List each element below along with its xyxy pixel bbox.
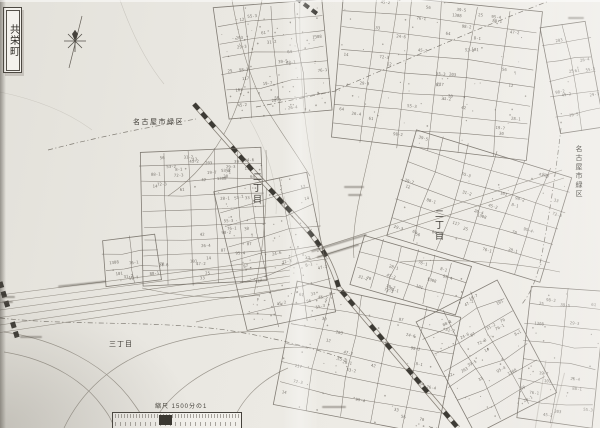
parcel-number: 95-4 — [495, 365, 506, 374]
parcel-number: 26-4 — [570, 376, 581, 382]
parcel-number: 12 — [239, 17, 245, 23]
micro-text — [2, 296, 15, 298]
parcel-number: 8-1 — [513, 329, 522, 337]
parcel-number: 56 — [274, 95, 280, 101]
parcel-number: 95-4 — [523, 226, 534, 234]
parcel-number: 61 — [261, 30, 267, 36]
parcel-number: 25 — [227, 68, 233, 74]
parcel-number: 33 — [477, 375, 484, 382]
parcel-number: 101 — [115, 270, 123, 276]
parcel-number: 53-2 — [346, 367, 357, 374]
parcel-number: 55-3 — [583, 407, 594, 413]
micro-text — [2, 301, 13, 303]
micro-text — [20, 336, 42, 338]
parcel-number: 98-2 — [462, 23, 473, 29]
parcel-number: 1308 — [109, 259, 120, 265]
parcel-number: 29-3 — [570, 320, 581, 326]
parcel-number: 64 — [287, 49, 293, 55]
interchange-ramps — [4, 314, 308, 428]
parcel-number: 88-1 — [149, 270, 160, 276]
parcel-number: 29-3 — [393, 224, 404, 232]
parcel-number: 64 — [445, 31, 451, 37]
parcel-number: 55-3 — [407, 103, 418, 109]
parcel-number: 12 — [300, 183, 306, 189]
parcel-number: 61 — [368, 116, 374, 122]
parcel-number: 61 — [591, 302, 597, 308]
parcel-number: 8-1 — [415, 361, 424, 367]
parcel-number: 42 — [461, 105, 467, 111]
parcel-number: 203 — [449, 72, 457, 78]
parcel-number: 31-2 — [462, 189, 473, 197]
parcel-cluster-far-southeast: 10176-1130819-788-139-52036126-429-32598… — [514, 283, 600, 428]
parcel-number: 19-7 — [495, 125, 506, 131]
parcel-number: 56 — [502, 67, 508, 73]
parcel-number: 8-1 — [473, 35, 481, 41]
parcel-number: 33 — [553, 197, 560, 203]
parcel-number: 56 — [426, 4, 432, 10]
parcel-number: 56 — [415, 231, 422, 237]
parcel-number: 8-1 — [175, 167, 183, 172]
parcel-number: 1308 — [452, 12, 463, 18]
parcel-number: 42 — [201, 177, 207, 182]
parcel-number: 28-1 — [511, 116, 522, 122]
parcel-number: 95-4 — [235, 250, 245, 255]
parcel-number: 14 — [483, 346, 490, 353]
parcel-number: 39-5 — [234, 159, 244, 164]
parcel-number: 31-2 — [441, 96, 452, 102]
parcel-cluster-west-grid-south: 31-210176-1130819-788-1 — [100, 232, 162, 286]
parcel-number: 28-1 — [220, 196, 230, 201]
parcel-number: 33 — [375, 25, 381, 31]
district-label-nichome-west: 二丁目 — [251, 172, 264, 205]
parcel-number: 117 — [244, 166, 252, 171]
parcel-number: 70 — [511, 229, 518, 235]
parcel-number: 87 — [435, 82, 441, 88]
parcel-number: 1308 — [426, 276, 437, 284]
parcel-number: 12 — [192, 157, 198, 162]
scale-label: 縮尺 1500分の1 — [155, 401, 207, 410]
parcel-number: 55-3 — [247, 13, 258, 19]
parcel-number: 33 — [200, 275, 206, 280]
parcel-number: 24-6 — [396, 33, 407, 39]
parcel-number: 101 — [471, 46, 479, 52]
parcel-number: 14 — [281, 389, 287, 395]
parcel-number: 45-2 — [418, 47, 429, 53]
parcel-cluster-north-right: 98-255-345-264561211753-2143024-68742337… — [328, 0, 542, 162]
parcel-number: 39-5 — [467, 358, 478, 367]
parcel-number: 203 — [236, 35, 244, 41]
parcel-number: 88-1 — [151, 171, 161, 176]
parcel-number: 45-2 — [237, 102, 248, 108]
parcel-number: 45-2 — [318, 294, 329, 301]
parcel-number: 39-5 — [418, 134, 429, 142]
parcel-number: 87 — [469, 331, 476, 338]
parcel-number: 24-6 — [244, 157, 254, 162]
parcel-number: 72-3 — [293, 378, 304, 385]
parcel-number: 55-3 — [224, 218, 234, 223]
town-title-inner-frame: 共栄町 — [6, 10, 20, 71]
parcel-number: 47-2 — [510, 29, 521, 35]
parcel-number: 117 — [242, 75, 250, 81]
parcel-number: 33 — [310, 291, 316, 297]
parcel-number: 101 — [544, 378, 552, 384]
parcel-number: 33 — [394, 407, 400, 413]
parcel-number: 70 — [419, 416, 425, 422]
parcel-number: 24-6 — [459, 331, 470, 340]
highway-lines — [0, 170, 564, 333]
parcel-number: 72-3 — [476, 337, 487, 346]
parcel-number: 33 — [245, 195, 251, 200]
parcel-number: 12 — [508, 82, 514, 88]
parcel-number: 25 — [478, 12, 484, 18]
parcel-number: 88-1 — [426, 197, 437, 205]
micro-text — [568, 17, 584, 19]
parcel-number: 61 — [574, 67, 580, 73]
parcel-number: 117 — [294, 363, 303, 369]
parcel-number: 98-2 — [515, 195, 526, 203]
parcel-number: 1308 — [534, 321, 545, 327]
parcel-number: 12 — [405, 183, 412, 189]
parcel-cluster-far-northeast: 39-52036126-429-32598-255-345-2 — [538, 19, 600, 135]
scale-bar-ticks — [115, 414, 239, 418]
parcel-number: 56 — [160, 155, 166, 160]
parcel-number: 42 — [200, 232, 206, 237]
parcel-number: 8-1 — [511, 202, 520, 209]
scale-bar-filled-segment — [159, 415, 172, 425]
parcel-number: 101 — [415, 283, 424, 290]
parcel-number: 95-4 — [442, 273, 453, 281]
parcel-number: 29-3 — [237, 44, 248, 50]
scale-bar — [112, 412, 242, 428]
parcel-number: 87 — [221, 247, 227, 252]
parcel-number: 88-1 — [572, 386, 583, 392]
parcel-number: 56 — [401, 414, 407, 420]
parcel-number: 117 — [452, 220, 461, 227]
parcel-number: 203 — [205, 160, 213, 165]
parcel-number: 31-2 — [267, 39, 278, 45]
parcel-number: 72-3 — [379, 54, 390, 60]
scanned-cadastral-map: 28-131-210176-1130819-788-139-52036126-4… — [0, 0, 600, 428]
parcel-number: 30 — [321, 316, 327, 322]
parcel-number: 87 — [398, 317, 404, 323]
parcel-number: 30 — [499, 131, 505, 137]
parcel-number: 12 — [326, 338, 332, 344]
parcel-number: 29-3 — [359, 80, 370, 86]
town-title: 共栄町 — [8, 24, 18, 57]
parcel-number: 64 — [339, 106, 345, 112]
parcel-number: 76-1 — [416, 15, 427, 21]
boundary-label-right: 名古屋市緑区 — [573, 145, 583, 199]
north-arrow-icon — [58, 14, 92, 72]
parcel-number: 28-1 — [508, 246, 519, 254]
parcel-number: 55-3 — [436, 71, 447, 77]
micro-text — [344, 186, 364, 188]
parcel-number: 19-7 — [207, 170, 217, 175]
district-label-nichome-east: 二丁目 — [433, 209, 446, 242]
parcel-number: 101 — [190, 258, 198, 263]
parcel-number: 76-1 — [494, 322, 505, 331]
scale-bar-ticks — [115, 422, 239, 426]
district-label-sanchome: 三丁目 — [109, 339, 133, 349]
parcel-number: 25 — [463, 226, 470, 232]
parcel-number: 19-7 — [262, 80, 273, 86]
parcel-number: 29-3 — [589, 91, 600, 98]
parcel-number: 98-2 — [239, 67, 250, 73]
parcel-number: 45-2 — [561, 91, 572, 98]
parcel-cluster-south-east-fan: 143024-687423372-347-28-195-47028-131-21… — [413, 278, 557, 428]
parcel-number: 101 — [235, 87, 243, 93]
parcel-number: 24-6 — [271, 250, 282, 257]
parcel-number: 14 — [206, 255, 212, 260]
parcel-number: 47-2 — [196, 261, 206, 266]
parcel-number: 8-1 — [305, 261, 314, 268]
parcel-number: 8-1 — [440, 266, 449, 273]
parcel-number: 26-4 — [351, 111, 362, 117]
parcel-number: 98-2 — [546, 297, 557, 303]
parcel-number: 28-1 — [342, 359, 353, 366]
parcel-number: 30 — [244, 225, 250, 231]
parcel-number: 47-2 — [343, 349, 354, 356]
parcel-number: 61 — [180, 187, 186, 192]
parcel-number: 72-3 — [174, 172, 184, 177]
parcel-number: 39-5 — [560, 302, 571, 308]
parcel-number: 70 — [499, 317, 506, 324]
parcel-number: 203 — [555, 37, 564, 43]
parcel-number: 98-2 — [393, 131, 404, 137]
micro-text — [348, 194, 362, 196]
parcel-number: 203 — [335, 329, 344, 335]
boundary-label-top: 名古屋市緑区 — [133, 117, 184, 127]
parcel-number: 26-4 — [580, 56, 591, 63]
parcel-number: 39-5 — [456, 7, 467, 13]
parcel-number: 14 — [343, 52, 349, 58]
parcel-number: 42 — [447, 371, 454, 378]
parcel-number: 30 — [223, 173, 229, 178]
parcel-number: 19-7 — [128, 275, 139, 281]
parcel-number: 39-5 — [569, 111, 580, 118]
parcel-number: 55-3 — [461, 171, 472, 179]
parcel-number: 28-1 — [388, 263, 399, 271]
parcel-number: 45-2 — [380, 0, 391, 5]
parcel-number: 53-2 — [234, 193, 245, 200]
parcel-cluster-east-mid: 3372-347-28-195-47028-131-210176-1130819… — [384, 127, 577, 284]
parcel-cluster-mid-strip: 72-347-28-195-47028-131-210176-1130819-7… — [349, 233, 472, 317]
parcel-number: 95-4 — [355, 397, 366, 404]
parcel-cluster-north-left: 28-131-210176-1130819-788-139-52036126-4… — [213, 0, 333, 122]
parcel-number: 76-1 — [482, 246, 493, 254]
parcel-number: 24-6 — [159, 262, 169, 267]
parcel-number: 76-1 — [317, 67, 328, 73]
parcel-number: 76-1 — [529, 390, 540, 396]
parcel-number: 72-3 — [157, 181, 167, 186]
parcel-number: 25 — [205, 270, 211, 275]
parcel-number: 76-1 — [129, 259, 140, 265]
parcel-number: 53-2 — [221, 168, 231, 173]
parcel-number: 12 — [387, 61, 393, 67]
parcel-number: 14 — [304, 195, 310, 201]
town-title-box: 共栄町 — [3, 7, 22, 73]
parcel-number: 1308 — [506, 367, 517, 376]
parcel-number: 26-4 — [201, 243, 211, 248]
parcel-number: 42 — [371, 363, 377, 369]
parcel-number: 117 — [254, 277, 263, 284]
parcel-number: 39-5 — [278, 58, 289, 64]
micro-text — [322, 406, 346, 408]
parcel-number: 98-2 — [410, 345, 421, 352]
parcel-number: 1308 — [312, 34, 323, 40]
